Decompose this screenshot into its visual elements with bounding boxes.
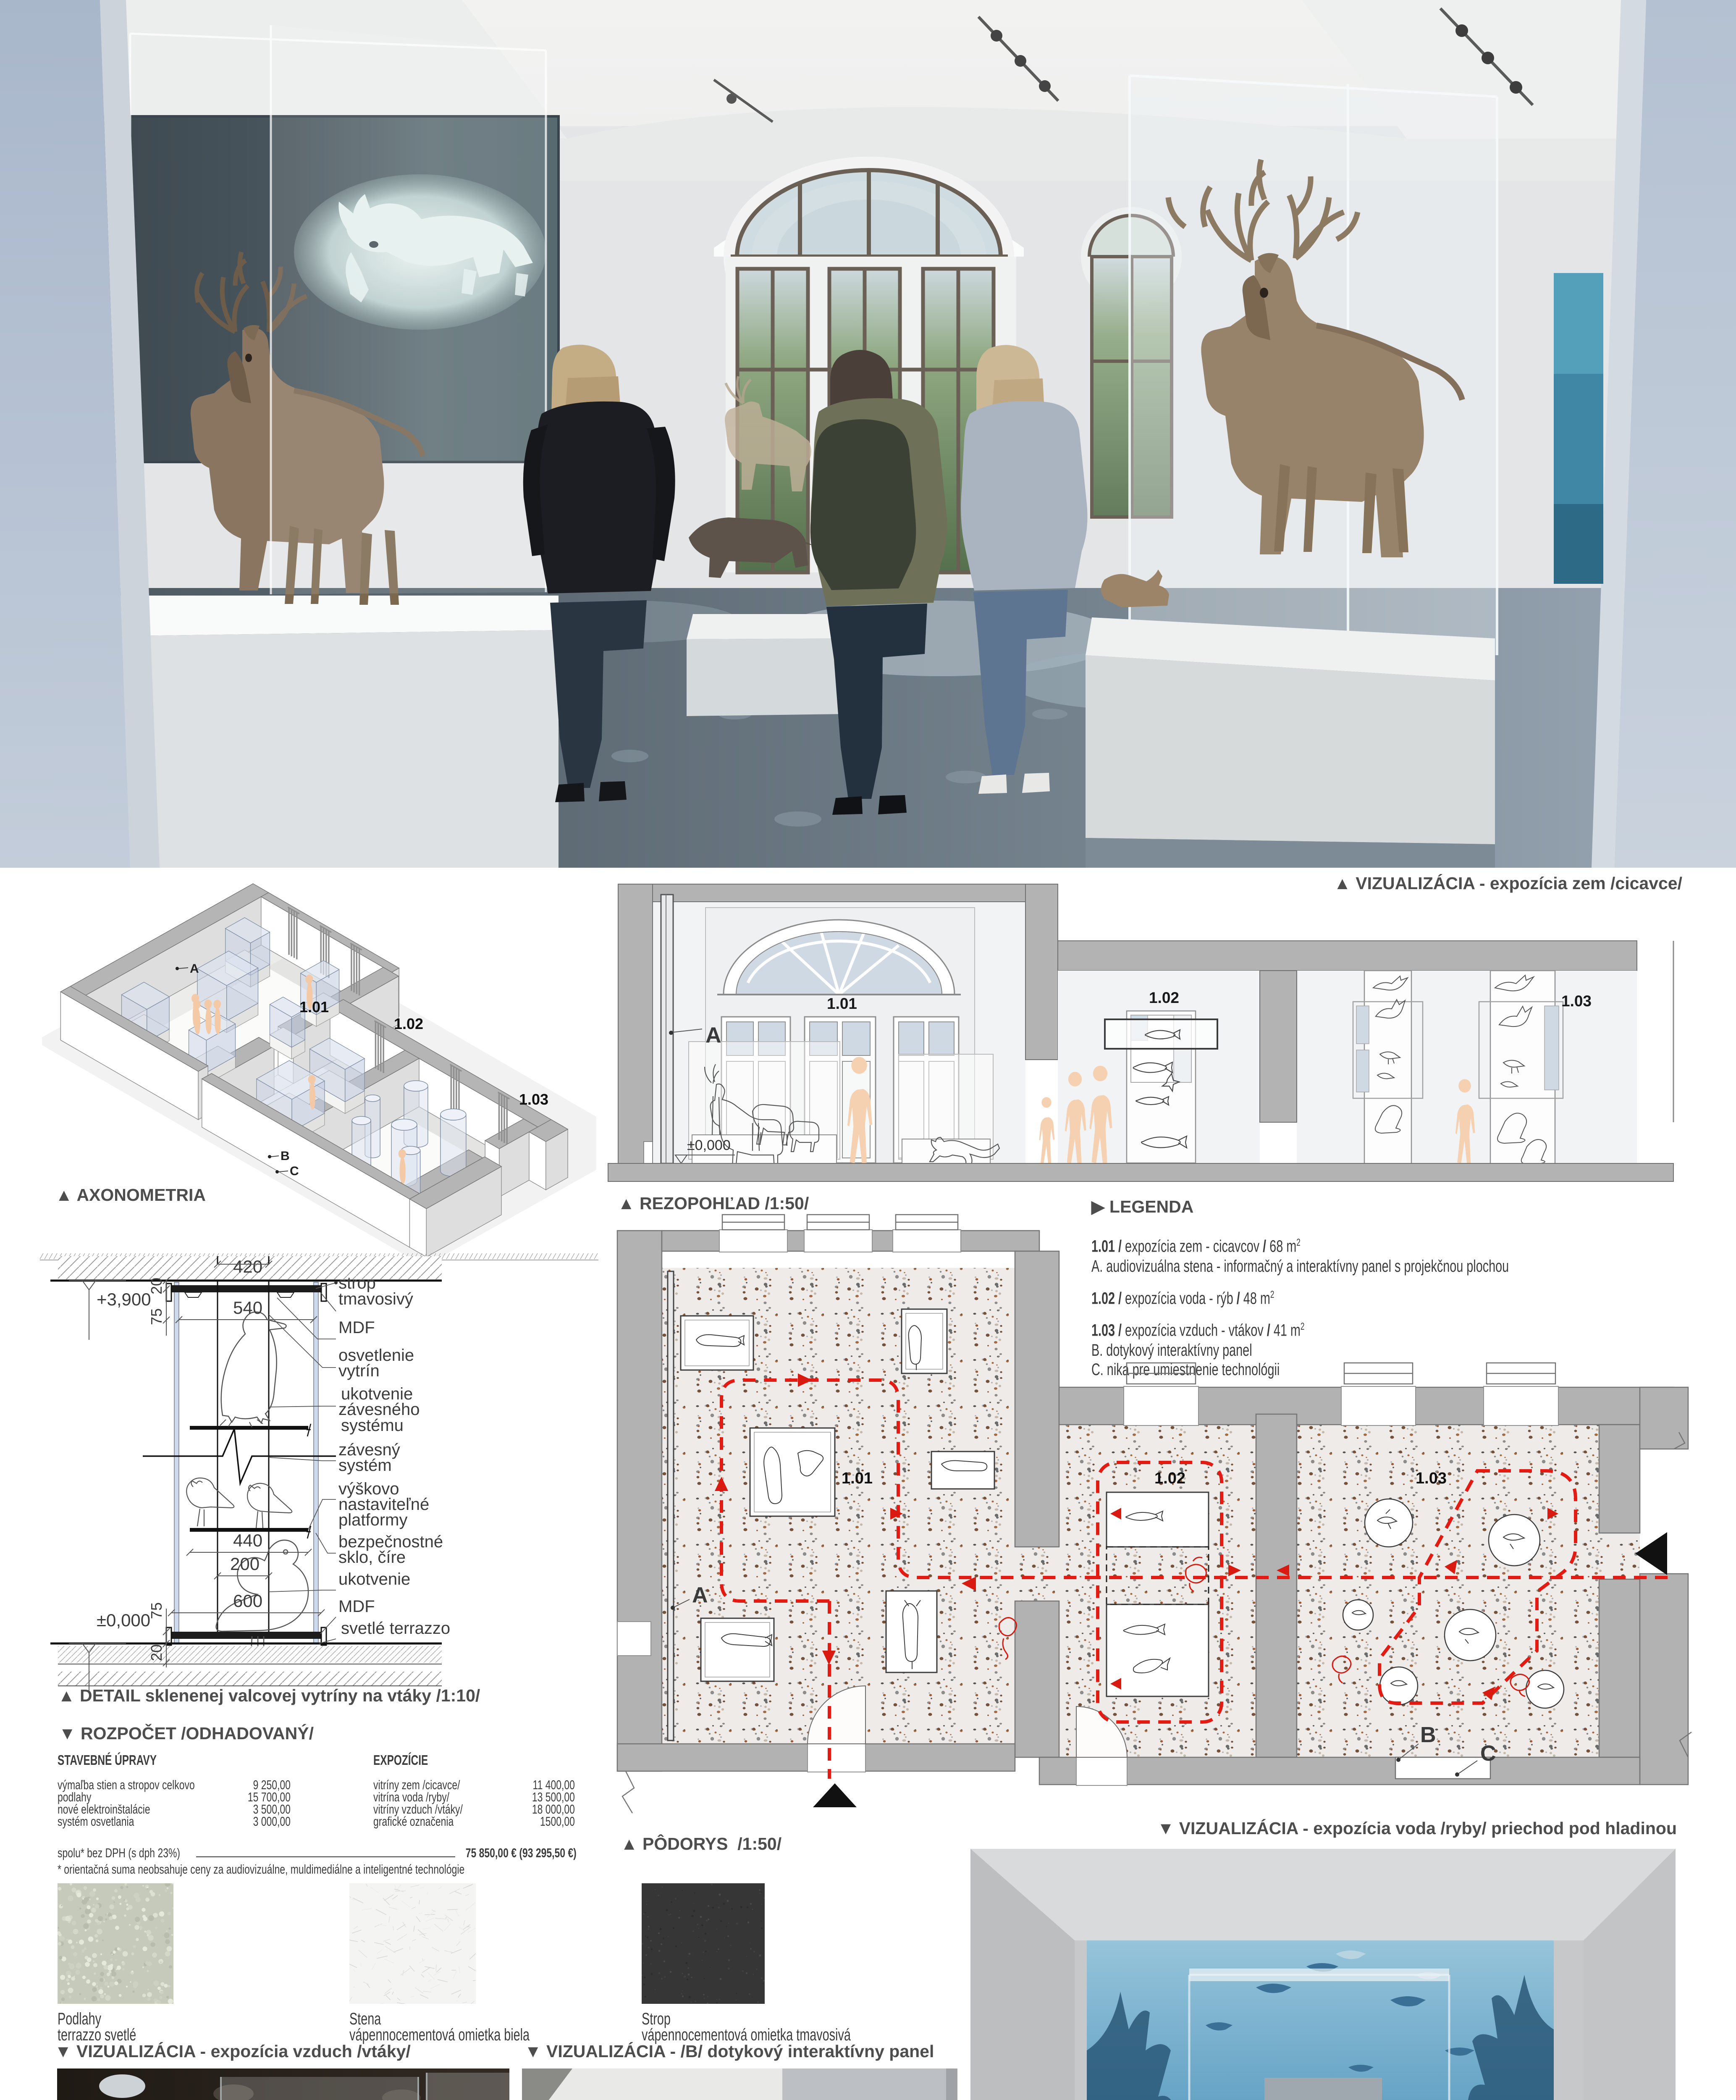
svg-text:±0,000: ±0,000 [97,1610,150,1630]
svg-text:1.02: 1.02 [394,1015,423,1032]
svg-text:1.01: 1.01 [299,998,329,1016]
svg-text:440: 440 [233,1530,262,1550]
svg-text:systém: systém [338,1456,392,1475]
svg-text:svetlé terrazzo: svetlé terrazzo [341,1619,450,1638]
svg-text:sklo, číre: sklo, číre [338,1548,406,1567]
svg-text:1.01: 1.01 [842,1470,873,1487]
svg-text:ukotvenie: ukotvenie [338,1570,410,1588]
svg-text:1.01: 1.01 [827,995,857,1012]
svg-text:600: 600 [233,1591,262,1611]
svg-text:platformy: platformy [338,1511,408,1529]
svg-text:200: 200 [230,1554,260,1574]
svg-text:systému: systému [341,1416,404,1435]
svg-text:C: C [290,1164,299,1178]
svg-text:1.03: 1.03 [1416,1470,1447,1487]
svg-text:1.02: 1.02 [1149,989,1179,1006]
svg-text:20: 20 [148,1278,165,1294]
svg-text:75: 75 [148,1602,165,1619]
svg-text:B: B [1420,1723,1436,1747]
svg-text:20: 20 [148,1644,165,1661]
svg-text:tmavosivý: tmavosivý [338,1290,413,1308]
svg-text:±0,000: ±0,000 [687,1137,731,1153]
svg-text:1.02: 1.02 [1154,1470,1185,1487]
svg-text:MDF: MDF [338,1318,375,1337]
svg-text:B: B [281,1149,290,1163]
svg-text:A: A [705,1023,721,1047]
svg-text:MDF: MDF [338,1597,375,1616]
svg-text:A: A [190,962,199,976]
svg-text:75: 75 [148,1308,165,1325]
svg-text:1.03: 1.03 [519,1091,548,1108]
svg-text:1.03: 1.03 [1561,992,1592,1010]
svg-text:C: C [1480,1741,1496,1766]
svg-text:vytrín: vytrín [338,1362,380,1380]
svg-text:A: A [692,1583,708,1607]
svg-text:+3,900: +3,900 [97,1289,151,1309]
svg-text:420: 420 [233,1257,262,1276]
svg-text:540: 540 [233,1298,262,1318]
